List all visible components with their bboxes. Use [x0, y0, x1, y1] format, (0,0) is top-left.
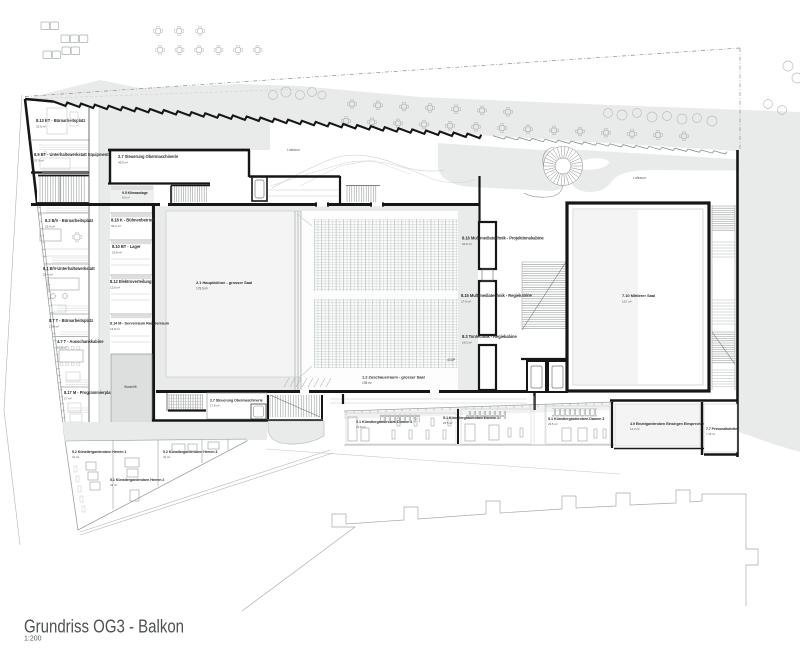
svg-text:8.1 B/V-Unterhaltswerkstatt: 8.1 B/V-Unterhaltswerkstatt [43, 266, 95, 271]
svg-text:198 m²: 198 m² [362, 381, 372, 385]
svg-text:23.5 m²: 23.5 m² [548, 422, 558, 426]
svg-text:8.17 M - Programmierplatz: 8.17 M - Programmierplatz [64, 390, 114, 395]
svg-text:14.3 m²: 14.3 m² [630, 427, 640, 431]
svg-text:8.3 Tontechnik - Regiekabine: 8.3 Tontechnik - Regiekabine [462, 334, 517, 339]
svg-text:19.2 m²: 19.2 m² [462, 341, 472, 345]
svg-text:5.2 Künstlergarderoben Herren: 5.2 Künstlergarderoben Herren 1 [72, 450, 126, 454]
svg-text:1:200: 1:200 [24, 636, 42, 643]
svg-text:2.1 Hauptbühne - grosser Saal: 2.1 Hauptbühne - grosser Saal [196, 280, 252, 285]
svg-text:37.9 m²: 37.9 m² [34, 159, 44, 163]
svg-text:Luftraum: Luftraum [633, 176, 646, 180]
svg-text:34.2 m²: 34.2 m² [111, 224, 121, 228]
svg-text:93.8 m²: 93.8 m² [462, 242, 472, 246]
svg-text:22.5 m²: 22.5 m² [36, 125, 46, 129]
svg-text:41 m²: 41 m² [72, 455, 79, 459]
svg-text:41 m²: 41 m² [110, 483, 117, 487]
svg-text:2.7 Steuerung Obermaschinerie: 2.7 Steuerung Obermaschinerie [210, 399, 263, 403]
svg-text:17.8 m²: 17.8 m² [49, 325, 59, 329]
svg-text:9.5 Klimaanlage: 9.5 Klimaanlage [122, 191, 148, 195]
svg-text:17.6 m²: 17.6 m² [461, 300, 471, 304]
svg-text:23.6 m²: 23.6 m² [43, 273, 53, 277]
svg-text:7.10 Mittlerer Saal: 7.10 Mittlerer Saal [622, 293, 655, 298]
svg-text:17 m²: 17 m² [64, 397, 72, 401]
svg-text:1.2 Zuschauerraum - grosser Sa: 1.2 Zuschauerraum - grosser Saal [362, 375, 425, 380]
svg-text:49.9 m²: 49.9 m² [118, 161, 128, 165]
svg-text:Grundriss OG3 - Balkon: Grundriss OG3 - Balkon [24, 616, 184, 637]
svg-text:5.1 Künstlergarderoben Damen 3: 5.1 Künstlergarderoben Damen 3 [548, 417, 604, 421]
svg-text:23.5 m²: 23.5 m² [443, 421, 453, 425]
svg-text:8.10 BT - Lager: 8.10 BT - Lager [112, 244, 141, 249]
svg-text:15.8 m²: 15.8 m² [112, 251, 122, 255]
svg-text:17.8 m²: 17.8 m² [210, 404, 220, 408]
svg-text:2.7 Steuerung Obermaschinerie: 2.7 Steuerung Obermaschinerie [118, 154, 179, 159]
svg-text:8.2 B/V - Büroarbeitsplatz: 8.2 B/V - Büroarbeitsplatz [45, 218, 93, 223]
svg-text:Luftraum: Luftraum [287, 148, 300, 152]
svg-text:178.6 m²: 178.6 m² [196, 287, 208, 291]
svg-text:4.9 Einzelgarderoben Einsingen: 4.9 Einzelgarderoben Einsingen Einsprech… [630, 422, 705, 426]
svg-text:132 m²: 132 m² [622, 300, 631, 304]
svg-text:6.6 m²: 6.6 m² [122, 196, 130, 200]
svg-text:7.7 Personaltoilette: 7.7 Personaltoilette [706, 427, 737, 431]
svg-text:13.8 m²: 13.8 m² [110, 286, 120, 290]
svg-text:Warenlift: Warenlift [124, 385, 137, 389]
svg-text:8.7 T - Büroarbeitsplatz: 8.7 T - Büroarbeitsplatz [49, 318, 93, 323]
svg-text:8.12 Elektroverteilung: 8.12 Elektroverteilung [110, 279, 152, 284]
svg-text:8.16 Multimediatechnik - Proje: 8.16 Multimediatechnik - Projektionskabi… [462, 236, 544, 241]
svg-text:22.6 m²: 22.6 m² [45, 225, 55, 229]
svg-text:8.9 BT - Unterhaltswerkstatt E: 8.9 BT - Unterhaltswerkstatt Equipment [34, 152, 109, 157]
svg-text:5.2 Künstlergarderoben Herren: 5.2 Künstlergarderoben Herren 3 [163, 450, 217, 454]
svg-text:8.14 M - Serverraum Rangierrau: 8.14 M - Serverraum Rangierraum [110, 322, 170, 326]
svg-text:7.15 m²: 7.15 m² [706, 432, 715, 436]
svg-text:14.8 m²: 14.8 m² [110, 327, 120, 331]
svg-text:413P: 413P [447, 358, 456, 362]
svg-text:4.7 T - Ausschankkabine: 4.7 T - Ausschankkabine [57, 339, 104, 344]
svg-text:8.18 K - Bühnenbetrieb: 8.18 K - Bühnenbetrieb [111, 218, 155, 223]
svg-text:41 m²: 41 m² [163, 455, 170, 459]
svg-text:5.1 Künstlergarderoben Herren: 5.1 Künstlergarderoben Herren 2 [110, 478, 164, 482]
